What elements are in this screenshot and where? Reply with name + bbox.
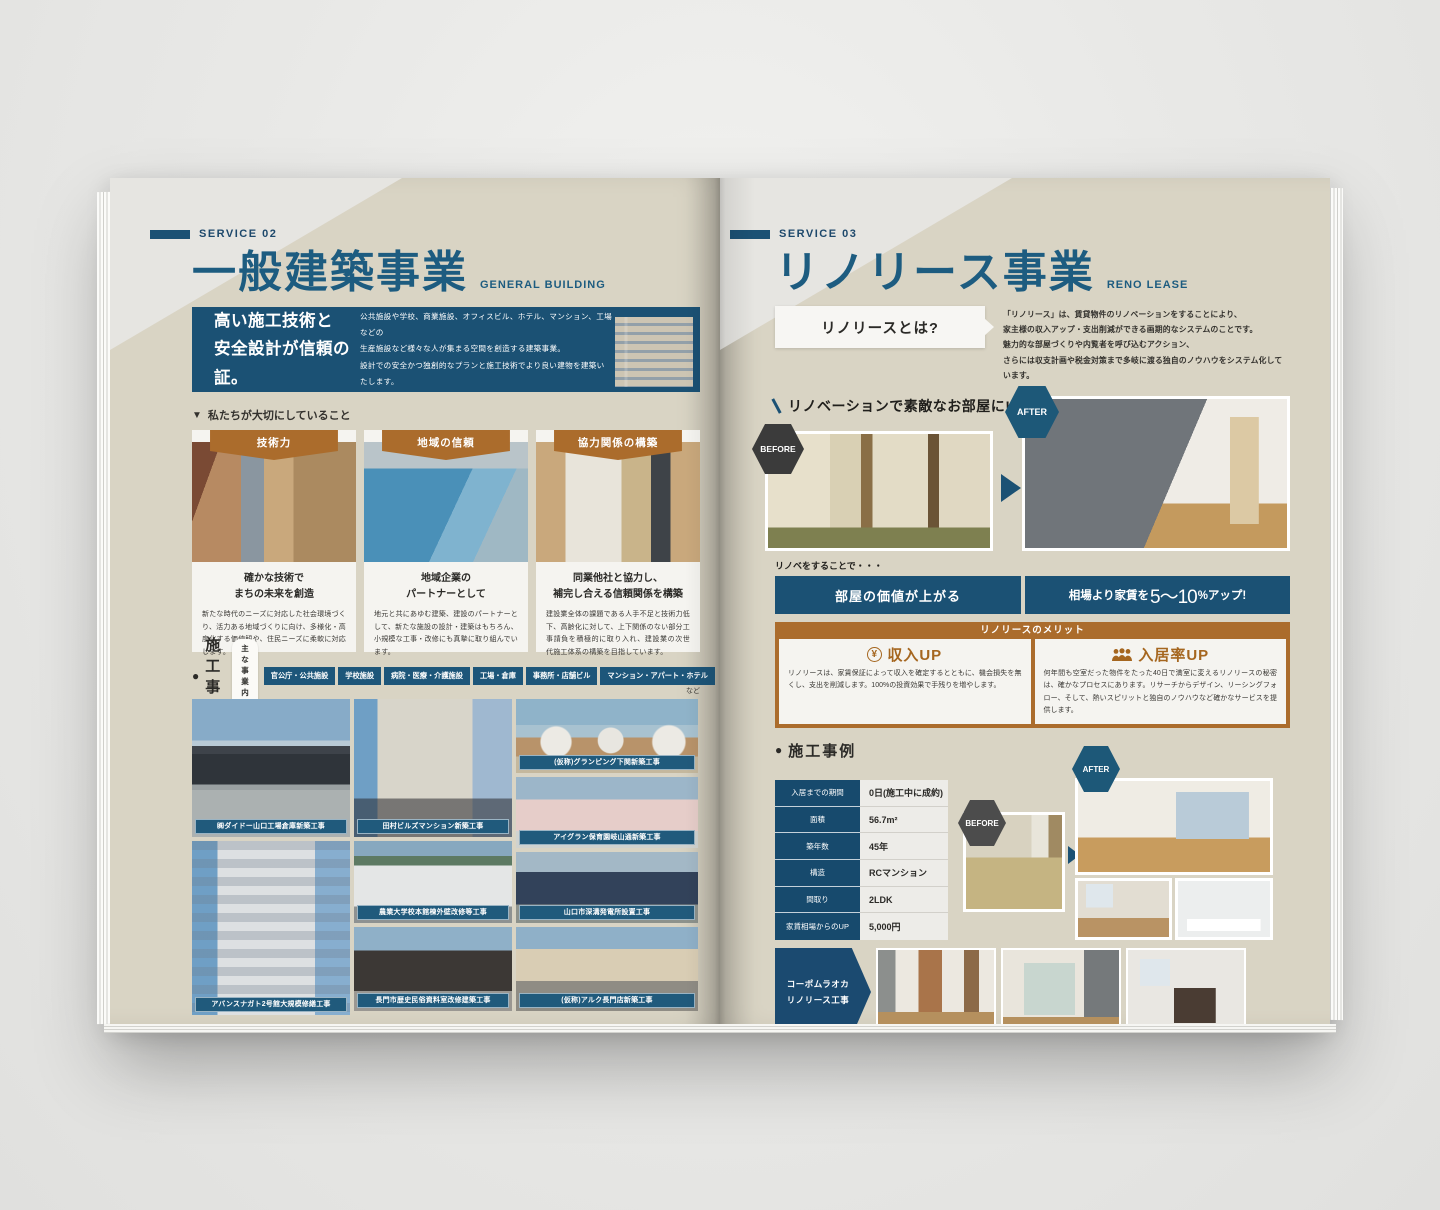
project-photo-solar-plant: 山口市深溝発電所設置工事 <box>516 852 698 923</box>
before-after-row: BEFORE AFTER <box>775 422 1290 554</box>
project-caption: 長門市歴史民俗資料室改修建築工事 <box>357 993 509 1008</box>
case-heading: 施工事例 <box>788 740 856 761</box>
value-card-technology: 技術力 確かな技術で まちの未来を創造 新たな時代のニーズに対応した社会環境づく… <box>192 430 356 652</box>
page-stack-bottom <box>104 1024 1336 1033</box>
hero-headline-line1: 高い施工技術と <box>214 307 360 335</box>
tags-note: など <box>686 686 700 696</box>
photo-case-after-living <box>1075 778 1273 875</box>
intro-description: 「リノリース」は、賃貸物件のリノベーションをすることにより、 家主様の収入アップ… <box>1003 306 1290 383</box>
table-row: 構造 RCマンション <box>775 860 948 887</box>
case-photos: BEFORE AFTER <box>958 762 1290 940</box>
tag-school: 学校施設 <box>338 667 381 685</box>
works-grid: ㈱ダイドー山口工場倉庫新築工事 アバンスナガト2号館大規模修繕工事 田村ビルズマ… <box>192 699 700 1015</box>
service-tag-bar <box>150 230 190 239</box>
photo-case-after-bedroom <box>1075 878 1172 940</box>
photo-reno-kitchen <box>1126 948 1246 1024</box>
service-tag-bar <box>730 230 770 239</box>
case-heading-row: ● 施工事例 <box>775 741 1290 759</box>
arrow-right-icon <box>1001 474 1021 502</box>
page-stack-left <box>97 192 110 1024</box>
page-stack-right <box>1330 188 1343 1020</box>
hero-headline-line2: 安全設計が信頼の証。 <box>214 335 360 391</box>
bottom-project-label: コーポムラオカ リノリース工事 <box>775 948 871 1024</box>
photo-workers-discussing <box>536 442 700 562</box>
tag-office: 事務所・店舗ビル <box>526 667 598 685</box>
business-tags: 官公庁・公共施設 学校施設 病院・医療・介護施設 工場・倉庫 事務所・店舗ビル … <box>264 667 715 685</box>
slash-left-icon <box>771 398 781 414</box>
photo-after-room <box>1022 396 1290 551</box>
photo-worker-inspecting <box>192 442 356 562</box>
page-title: リノリース事業 <box>775 251 1095 295</box>
page-title-en: RENO LEASE <box>1107 279 1189 295</box>
project-caption: アイグラン保育園岐山通新築工事 <box>519 830 695 845</box>
hero-banner: 高い施工技術と 安全設計が信頼の証。 公共施設や学校、商業施設、オフィスビル、ホ… <box>192 307 700 392</box>
project-photo-warehouse: ㈱ダイドー山口工場倉庫新築工事 <box>192 699 350 837</box>
hero-description: 公共施設や学校、商業施設、オフィスビル、ホテル、マンション、工場などの 生産施設… <box>360 309 612 391</box>
value-cards: 技術力 確かな技術で まちの未来を創造 新たな時代のニーズに対応した社会環境づく… <box>192 430 700 652</box>
people-icon <box>1111 648 1133 662</box>
desk-background: SERVICE 02 一般建築事業 GENERAL BUILDING 高い施工技… <box>0 0 1440 1210</box>
photo-scaffolding <box>364 442 528 562</box>
works-heading-row: ● 施工事例 主な事業内容 官公庁・公共施設 学校施設 病院・医療・介護施設 工… <box>192 665 700 687</box>
project-photo-store: (仮称)アルク長門店新築工事 <box>516 927 698 1011</box>
values-heading: ▼ 私たちが大切にしていること <box>192 407 700 423</box>
project-caption: アバンスナガト2号館大規模修繕工事 <box>195 997 347 1012</box>
service-tag-label: SERVICE 02 <box>199 228 277 240</box>
tag-factory: 工場・倉庫 <box>473 667 523 685</box>
triangle-down-icon: ▼ <box>192 410 202 421</box>
page-title: 一般建築事業 <box>192 251 468 295</box>
building-photo <box>615 317 693 387</box>
project-caption: 山口市深溝発電所設置工事 <box>519 905 695 920</box>
table-row: 間取り 2LDK <box>775 887 948 914</box>
project-caption: 農業大学校本館棟外壁改修等工事 <box>357 905 509 920</box>
page-title-row: 一般建築事業 GENERAL BUILDING <box>192 245 700 295</box>
page-general-building: SERVICE 02 一般建築事業 GENERAL BUILDING 高い施工技… <box>110 178 720 1024</box>
table-row: 築年数 45年 <box>775 833 948 860</box>
tag-hospital: 病院・医療・介護施設 <box>384 667 470 685</box>
project-photo-school: 農業大学校本館棟外壁改修等工事 <box>354 841 512 923</box>
merit-heading: リノリースのメリット <box>779 622 1286 639</box>
yen-circle-icon: ¥ <box>867 647 882 662</box>
right-page-content: SERVICE 03 リノリース事業 RENO LEASE リノリースとは? 「… <box>720 228 1330 1024</box>
left-page-content: SERVICE 02 一般建築事業 GENERAL BUILDING 高い施工技… <box>110 228 720 1024</box>
service-tag-row: SERVICE 02 <box>192 228 700 240</box>
benefit-bars: 部屋の価値が上がる 相場より家賃を 5〜10 %アップ! <box>775 576 1290 614</box>
service-tag-label: SERVICE 03 <box>779 228 857 240</box>
tag-public: 官公庁・公共施設 <box>264 667 336 685</box>
circle-icon: ● <box>775 743 782 757</box>
service-tag-row: SERVICE 03 <box>775 228 1290 240</box>
page-reno-lease: SERVICE 03 リノリース事業 RENO LEASE リノリースとは? 「… <box>720 178 1330 1024</box>
hero-headline: 高い施工技術と 安全設計が信頼の証。 <box>192 307 360 391</box>
circle-icon: ● <box>192 669 199 683</box>
table-row: 家賃相場からのUP 5,000円 <box>775 913 948 940</box>
merit-card-income: ¥ 収入UP リノリースは、家賃保証によって収入を確定するとともに、機会損失を無… <box>779 639 1031 724</box>
page-title-en: GENERAL BUILDING <box>480 279 606 295</box>
bottom-project-row: コーポムラオカ リノリース工事 <box>775 948 1290 1024</box>
case-study-row: 入居までの期間 0日(施工中に成約) 面積 56.7m² 築年数 45年 <box>775 762 1290 940</box>
project-photo-museum: 長門市歴史民俗資料室改修建築工事 <box>354 927 512 1011</box>
project-photo-apartment-tower: アバンスナガト2号館大規模修繕工事 <box>192 841 350 1015</box>
value-card-local-trust: 地域の信頼 地域企業の パートナーとして 地元と共にあゆむ建築、建設のパートナー… <box>364 430 528 652</box>
project-caption: ㈱ダイドー山口工場倉庫新築工事 <box>195 819 347 834</box>
photo-case-after-bathroom <box>1175 878 1273 940</box>
page-title-row: リノリース事業 RENO LEASE <box>775 245 1290 295</box>
table-row: 面積 56.7m² <box>775 807 948 834</box>
table-row: 入居までの期間 0日(施工中に成約) <box>775 780 948 807</box>
value-card-cooperation: 協力関係の構築 同業他社と協力し、 補完し合える信頼関係を構築 建設業全体の課題… <box>536 430 700 652</box>
project-photo-glamping: (仮称)グランピング下関新築工事 <box>516 699 698 773</box>
photo-reno-doors <box>876 948 996 1024</box>
brochure-spread: SERVICE 02 一般建築事業 GENERAL BUILDING 高い施工技… <box>110 178 1330 1024</box>
merit-card-occupancy: 入居率UP 何年間も空室だった物件をたった40日で満室に変えるリノリースの秘密は… <box>1035 639 1287 724</box>
benefit-bar-value: 部屋の価値が上がる <box>775 576 1021 614</box>
merit-box: リノリースのメリット ¥ 収入UP リノリースは、家賃保証によって収入を確定する… <box>775 622 1290 728</box>
project-caption: (仮称)グランピング下関新築工事 <box>519 755 695 770</box>
case-spec-table: 入居までの期間 0日(施工中に成約) 面積 56.7m² 築年数 45年 <box>775 780 948 940</box>
renobe-note: リノベをすることで・・・ <box>775 559 1290 572</box>
project-photo-nursery: アイグラン保育園岐山通新築工事 <box>516 777 698 848</box>
pages: SERVICE 02 一般建築事業 GENERAL BUILDING 高い施工技… <box>110 178 1330 1024</box>
tag-mansion: マンション・アパート・ホテル <box>600 667 714 685</box>
photo-reno-window <box>1001 948 1121 1024</box>
project-caption: 田村ビルズマンション新築工事 <box>357 819 509 834</box>
what-is-renolease-box: リノリースとは? <box>775 306 985 348</box>
project-photo-mansion: 田村ビルズマンション新築工事 <box>354 699 512 837</box>
project-caption: (仮称)アルク長門店新築工事 <box>519 993 695 1008</box>
intro-row: リノリースとは? 「リノリース」は、賃貸物件のリノベーションをすることにより、 … <box>775 306 1290 383</box>
benefit-bar-rent: 相場より家賃を 5〜10 %アップ! <box>1025 576 1290 614</box>
